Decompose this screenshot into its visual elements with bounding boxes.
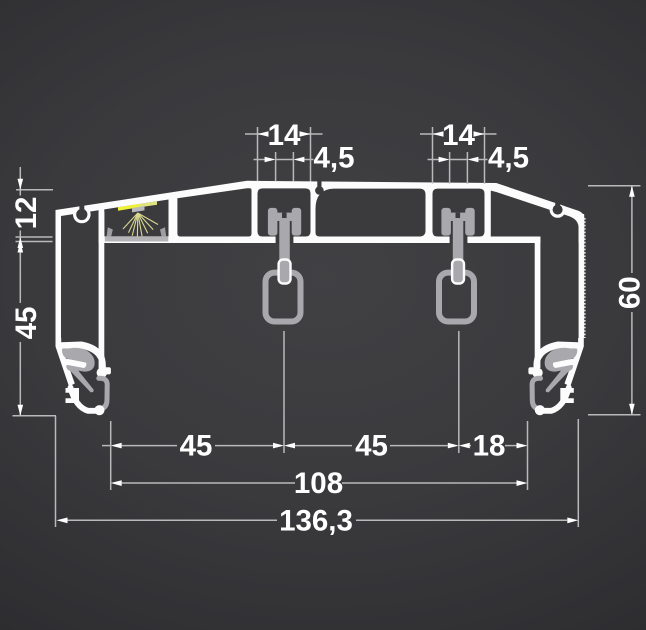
- svg-text:108: 108: [294, 467, 343, 500]
- svg-text:45: 45: [180, 430, 213, 463]
- svg-text:45: 45: [355, 430, 388, 463]
- svg-text:4,5: 4,5: [488, 142, 529, 175]
- svg-text:136,3: 136,3: [279, 504, 353, 537]
- svg-text:60: 60: [614, 276, 646, 309]
- svg-text:4,5: 4,5: [313, 142, 354, 175]
- svg-text:14: 14: [442, 119, 475, 152]
- svg-text:14: 14: [268, 119, 301, 152]
- svg-text:18: 18: [473, 430, 506, 463]
- svg-text:45: 45: [10, 307, 43, 340]
- svg-text:12: 12: [10, 197, 43, 230]
